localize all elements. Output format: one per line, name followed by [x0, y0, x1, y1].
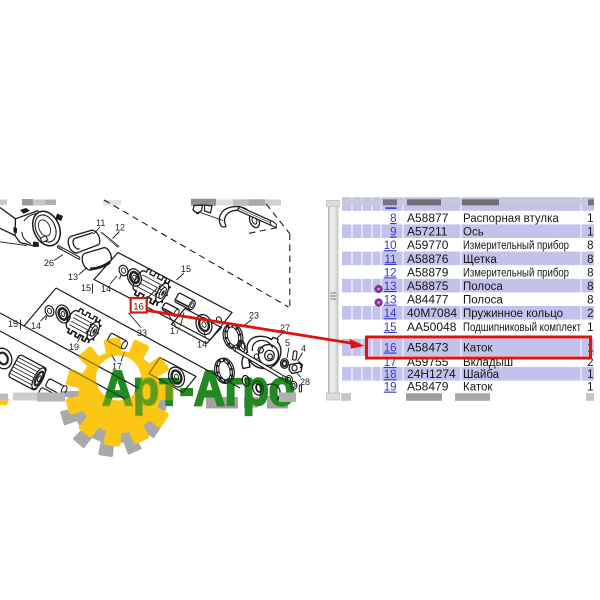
svg-text:8: 8: [587, 281, 593, 293]
svg-text:8: 8: [587, 295, 593, 307]
svg-text:1: 1: [587, 382, 593, 394]
svg-text:8: 8: [587, 267, 593, 279]
svg-text:16: 16: [384, 343, 397, 355]
svg-text:12: 12: [115, 223, 125, 233]
svg-text:Полоса: Полоса: [463, 281, 503, 293]
svg-text:10: 10: [384, 240, 397, 252]
svg-text:А59770: А59770: [407, 238, 449, 252]
svg-text:14: 14: [101, 284, 111, 294]
svg-text:Арт-Агро: Арт-Агро: [102, 362, 295, 416]
svg-text:13: 13: [384, 281, 397, 293]
svg-text:28: 28: [300, 377, 310, 387]
svg-text:13: 13: [68, 272, 78, 282]
svg-text:14: 14: [31, 321, 41, 331]
svg-text:14: 14: [384, 308, 397, 320]
svg-text:17: 17: [170, 326, 180, 336]
svg-text:15: 15: [181, 264, 191, 274]
svg-text:18: 18: [384, 369, 397, 381]
svg-text:Щетка: Щетка: [463, 254, 497, 266]
svg-text:26: 26: [44, 258, 54, 268]
svg-text:16: 16: [133, 302, 144, 313]
svg-text:Шайба: Шайба: [463, 369, 500, 381]
svg-text:15: 15: [81, 283, 91, 293]
svg-text:4: 4: [301, 344, 306, 354]
svg-text:А57211: А57211: [407, 225, 448, 239]
svg-text:8: 8: [587, 240, 593, 252]
svg-text:12: 12: [384, 267, 397, 279]
svg-text:19: 19: [384, 382, 397, 394]
svg-text:11: 11: [96, 218, 105, 228]
svg-text:А58875: А58875: [407, 279, 449, 293]
svg-text:5: 5: [285, 338, 290, 348]
svg-text:1: 1: [587, 227, 593, 239]
svg-text:А58473: А58473: [407, 341, 449, 355]
svg-text:Измерительный прибор: Измерительный прибор: [463, 240, 569, 252]
svg-text:Каток: Каток: [463, 382, 493, 394]
svg-text:1: 1: [587, 322, 593, 334]
svg-text:14: 14: [197, 340, 207, 350]
svg-text:2: 2: [587, 308, 593, 320]
svg-text:1: 1: [587, 213, 593, 225]
svg-text:13: 13: [384, 295, 397, 307]
svg-text:АА50048: АА50048: [407, 320, 457, 334]
svg-text:А58879: А58879: [407, 265, 449, 279]
svg-text:А58479: А58479: [407, 380, 449, 394]
svg-text:9: 9: [390, 227, 396, 239]
svg-text:Пружинное кольцо: Пружинное кольцо: [463, 308, 563, 320]
svg-text:А84477: А84477: [407, 293, 449, 307]
svg-text:40М7084: 40М7084: [407, 306, 457, 320]
svg-text:23: 23: [249, 311, 259, 321]
svg-text:Измерительный прибор: Измерительный прибор: [463, 267, 569, 279]
svg-text:А58877: А58877: [407, 211, 449, 225]
svg-text:15: 15: [384, 322, 397, 334]
svg-text:Полоса: Полоса: [463, 295, 503, 307]
svg-text:Каток: Каток: [463, 343, 493, 355]
svg-text:А58876: А58876: [407, 252, 449, 266]
svg-text:8: 8: [587, 254, 593, 266]
svg-text:11: 11: [385, 254, 397, 266]
svg-text:Подшипниковый комплект: Подшипниковый комплект: [463, 322, 582, 334]
svg-text:15: 15: [8, 319, 18, 329]
svg-text:1: 1: [587, 369, 593, 381]
svg-text:19: 19: [69, 342, 79, 352]
svg-text:8: 8: [390, 213, 396, 225]
svg-text:Ось: Ось: [463, 227, 484, 239]
svg-text:Распорная втулка: Распорная втулка: [463, 213, 559, 225]
